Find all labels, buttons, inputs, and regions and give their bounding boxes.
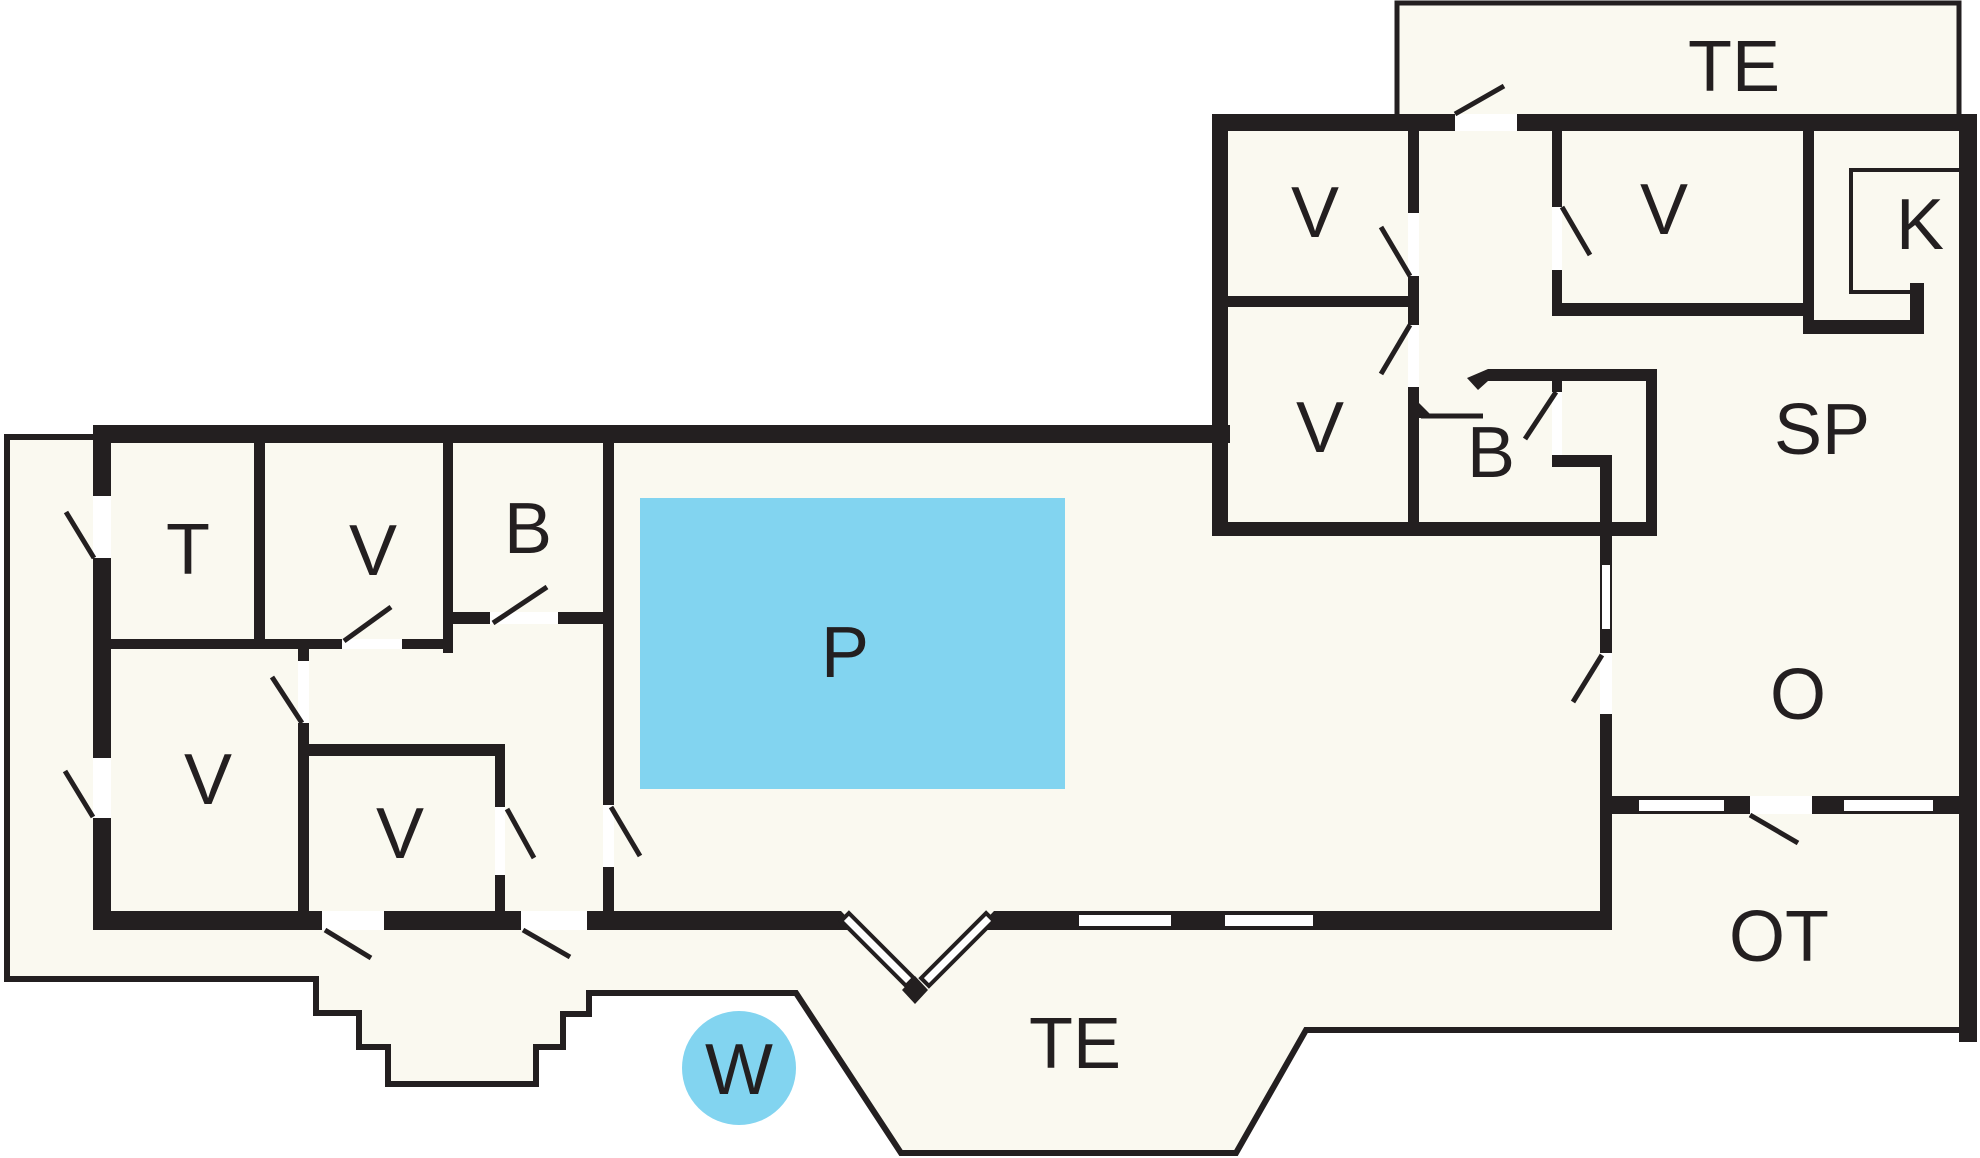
svg-text:P: P: [821, 613, 869, 693]
svg-text:V: V: [349, 511, 397, 591]
svg-text:V: V: [1640, 170, 1688, 250]
svg-text:V: V: [376, 794, 424, 874]
svg-text:K: K: [1896, 185, 1944, 265]
svg-text:T: T: [166, 510, 210, 590]
svg-text:TE: TE: [1688, 27, 1780, 107]
svg-text:TE: TE: [1029, 1004, 1121, 1084]
svg-text:OT: OT: [1729, 897, 1829, 977]
svg-text:B: B: [1467, 413, 1515, 493]
svg-text:V: V: [184, 740, 232, 820]
svg-text:V: V: [1291, 173, 1339, 253]
svg-text:O: O: [1770, 655, 1826, 735]
svg-text:SP: SP: [1774, 390, 1870, 470]
svg-text:W: W: [705, 1030, 773, 1110]
svg-text:B: B: [504, 489, 552, 569]
svg-text:V: V: [1296, 388, 1344, 468]
